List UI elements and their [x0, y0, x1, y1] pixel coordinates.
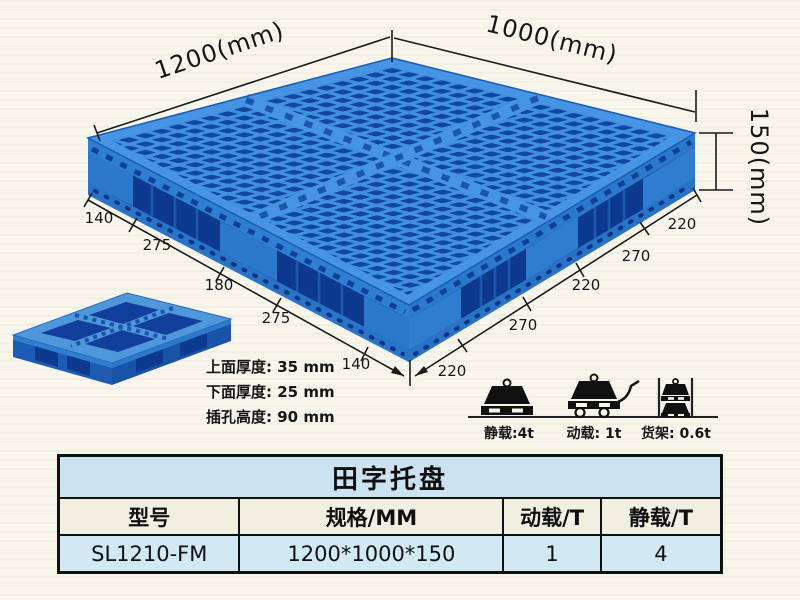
table-header-row: 型号 规格/MM 动载/T 静载/T [59, 498, 722, 535]
header-cell-static-load: 静载/T [601, 498, 722, 535]
spec-table-wrap: 田字托盘 型号 规格/MM 动载/T 静载/T SL1210-FM 1200*1… [57, 454, 723, 574]
segment-label: 220 [668, 215, 697, 233]
left-dim-arrowhead [391, 366, 404, 376]
right-dim-arrowhead [415, 366, 428, 376]
dim-height-label: 150(mm) [745, 108, 773, 226]
dynamic-load-icon [568, 375, 639, 418]
table-data-row: SL1210-FM 1200*1000*150 1 4 [59, 535, 722, 573]
header-cell-spec: 规格/MM [239, 498, 503, 535]
segment-label: 180 [205, 276, 234, 294]
segment-label: 270 [509, 316, 538, 334]
product-spec-sheet: 1200(mm) 1000(mm) 150(mm) 140 275 180 27… [0, 0, 800, 600]
segment-label: 140 [85, 209, 114, 227]
segment-label: 140 [342, 355, 371, 373]
header-cell-model: 型号 [59, 498, 240, 535]
data-cell-model: SL1210-FM [59, 535, 240, 573]
segment-label: 275 [143, 236, 172, 254]
pallet-diagram: 1200(mm) 1000(mm) 150(mm) 140 275 180 27… [0, 0, 800, 455]
load-ratings: 静载:4t 动载: 1t 货架: 0.6t [468, 375, 718, 443]
static-load-label: 静载:4t [484, 425, 534, 442]
thickness-note: 插孔高度: 90 mm [206, 408, 335, 426]
table-title: 田字托盘 [59, 456, 722, 499]
data-cell-spec: 1200*1000*150 [239, 535, 503, 573]
rack-load-icon [659, 378, 692, 417]
thickness-note: 上面厚度: 35 mm [206, 358, 335, 376]
dynamic-load-label: 动载: 1t [567, 425, 622, 442]
segment-label: 275 [262, 309, 291, 327]
thickness-note: 下面厚度: 25 mm [206, 383, 335, 401]
data-cell-static-load: 4 [601, 535, 722, 573]
dim-width-label: 1000(mm) [483, 9, 620, 69]
thickness-notes: 上面厚度: 35 mm 下面厚度: 25 mm 插孔高度: 90 mm [206, 358, 335, 426]
segment-label: 220 [438, 362, 467, 380]
small-pallet-illustration [13, 293, 231, 385]
rack-load-label: 货架: 0.6t [640, 425, 711, 442]
segment-label: 270 [622, 247, 651, 265]
header-cell-dynamic-load: 动载/T [503, 498, 600, 535]
data-cell-dynamic-load: 1 [503, 535, 600, 573]
segment-label: 220 [572, 276, 601, 294]
dim-length-label: 1200(mm) [151, 16, 288, 85]
table-title-row: 田字托盘 [59, 456, 722, 499]
pallet-top-face [88, 58, 695, 305]
spec-table: 田字托盘 型号 规格/MM 动载/T 静载/T SL1210-FM 1200*1… [57, 454, 723, 574]
static-load-icon [481, 380, 533, 416]
